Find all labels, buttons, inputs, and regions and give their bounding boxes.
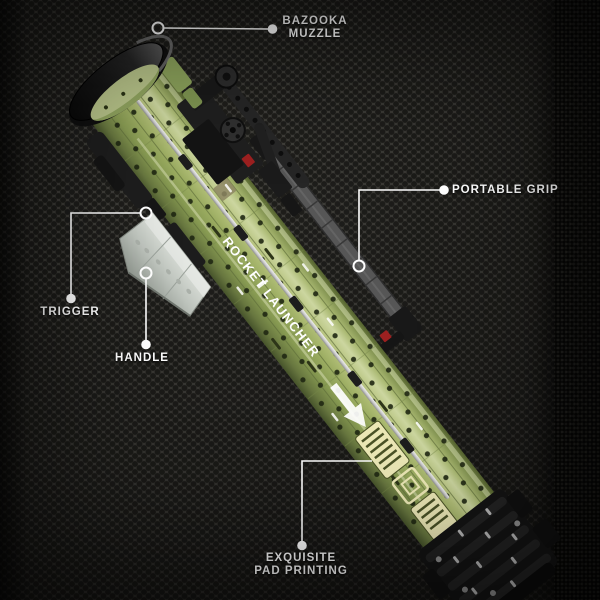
callout-portable-grip: PORTABLE GRIP	[452, 184, 559, 197]
grip-leader-line	[354, 186, 449, 272]
callout-pad-printing-line1: EXQUISITE	[238, 552, 364, 565]
callout-pad-printing-line2: PAD PRINTING	[238, 565, 364, 578]
callout-handle-text: HANDLE	[106, 352, 178, 365]
callout-trigger: TRIGGER	[26, 306, 114, 319]
callout-pad-printing: EXQUISITE PAD PRINTING	[238, 552, 364, 577]
callout-handle: HANDLE	[106, 352, 178, 365]
pad-printing-leader-line	[298, 461, 372, 550]
callout-portable-grip-text: PORTABLE GRIP	[452, 184, 559, 197]
callout-bazooka-muzzle-line2: MUZZLE	[280, 28, 350, 41]
callout-bazooka-muzzle: BAZOOKA MUZZLE	[280, 15, 350, 40]
muzzle-leader-line	[153, 23, 277, 34]
handle-leader-line	[141, 268, 152, 349]
callout-bazooka-muzzle-line1: BAZOOKA	[280, 15, 350, 28]
product-showcase-canvas: ROCKET LAUNCHER	[0, 0, 600, 600]
trigger-leader-line	[67, 208, 152, 303]
callout-lines	[0, 0, 600, 600]
callout-trigger-text: TRIGGER	[26, 306, 114, 319]
